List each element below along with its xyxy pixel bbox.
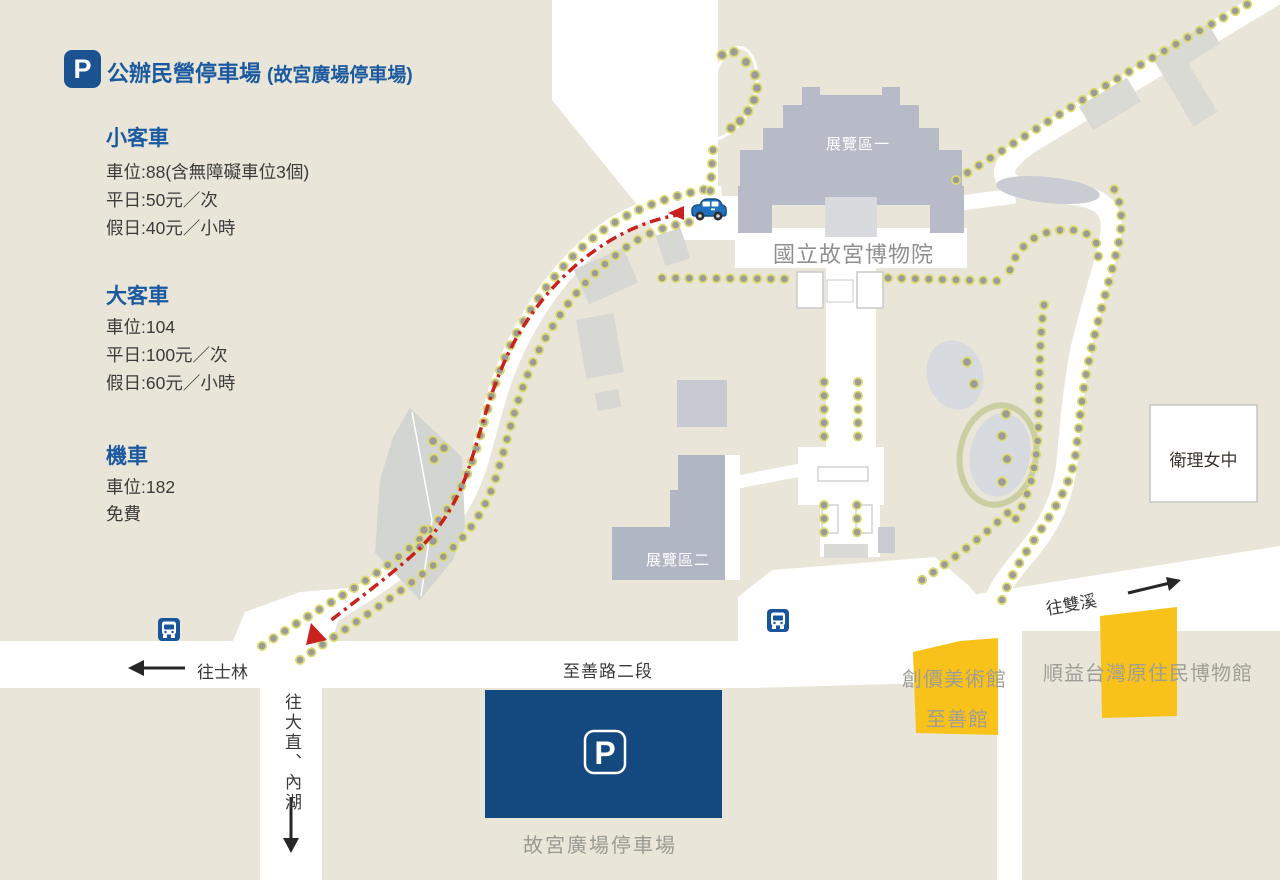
bus-holiday-rate: 假日:60元／小時: [106, 370, 235, 395]
bus-stop-icon-west: [158, 618, 180, 641]
bus-stop-icon-east: [767, 609, 789, 632]
section-heading-car: 小客車: [106, 122, 169, 152]
label-shungye-museum: 順益台灣原住民博物館: [1043, 657, 1253, 686]
map-canvas: P: [0, 0, 1280, 880]
moto-rate: 免費: [106, 501, 141, 526]
label-plaza-parking: 故宮廣場停車場: [523, 829, 677, 858]
label-museum: 國立故宮博物院: [773, 237, 934, 269]
label-school: 衛理女中: [1150, 446, 1257, 471]
label-zhishan-hall: 至善館: [926, 703, 989, 732]
museum-main-building: [738, 87, 964, 237]
page-title-main: 公辦民營停車場: [107, 61, 261, 86]
page-title-sub: (故宮廣場停車場): [267, 65, 413, 86]
section-heading-moto: 機車: [106, 440, 148, 470]
section-heading-bus: 大客車: [106, 280, 169, 310]
car-weekday-rate: 平日:50元／次: [106, 187, 218, 212]
parking-map-page: P: [0, 0, 1280, 880]
label-exhibition2: 展覽區二: [646, 549, 710, 570]
pond: [919, 334, 991, 416]
label-exhibition1: 展覽區一: [826, 133, 890, 154]
mountain-road: [270, 196, 722, 652]
parking-title-icon: P: [64, 50, 101, 88]
page-title: 公辦民營停車場(故宮廣場停車場): [107, 56, 413, 88]
car-spaces: 車位:88(含無障礙車位3個): [106, 159, 309, 184]
label-road-zhishan: 至善路二段: [563, 657, 653, 682]
bus-weekday-rate: 平日:100元／次: [106, 342, 228, 367]
label-soka-art: 創價美術館: [902, 663, 1007, 692]
label-to-dazhi-neihu: 往大直、內湖: [279, 693, 304, 813]
car-holiday-rate: 假日:40元／小時: [106, 215, 235, 240]
label-to-shilin: 往士林: [197, 658, 248, 683]
tree-cluster-trail: [717, 47, 763, 134]
parking-sign-letter: P: [594, 735, 615, 771]
bus-spaces: 車位:104: [106, 314, 175, 339]
moto-spaces: 車位:182: [106, 474, 175, 499]
